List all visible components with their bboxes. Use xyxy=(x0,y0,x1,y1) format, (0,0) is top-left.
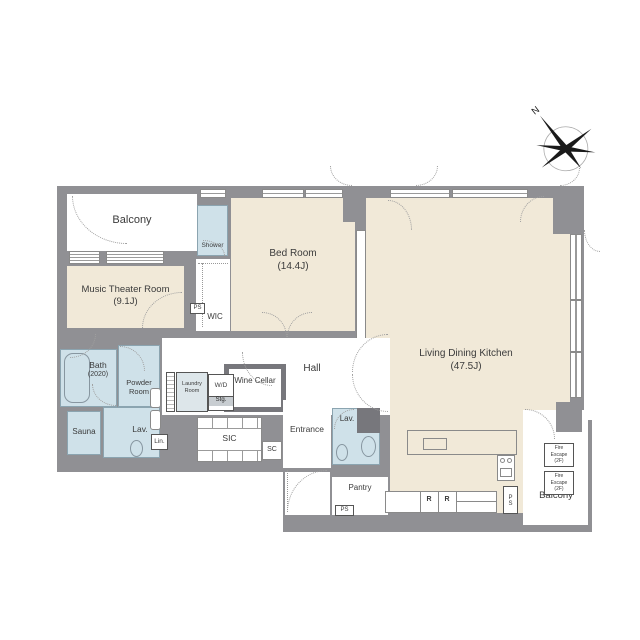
balcony-south-notch xyxy=(556,402,582,432)
window-east-2 xyxy=(570,300,582,352)
vent-arc-top-2 xyxy=(416,166,438,186)
ps-wic-label: PS xyxy=(190,305,205,313)
cooktop-grill xyxy=(500,468,512,477)
cooktop-burner-2 xyxy=(507,458,512,463)
sic-shelves-top xyxy=(198,418,261,429)
refrigerator-1-label: R xyxy=(420,496,438,505)
laundry-label: Laundry Room xyxy=(176,381,208,395)
wic-hanger-pipe-top xyxy=(198,263,228,264)
kitchen-counter-shelfline xyxy=(457,501,496,502)
cooktop-burner-1 xyxy=(500,458,505,463)
window-top-4 xyxy=(390,189,450,198)
bedroom-bottom-wall-left xyxy=(231,331,262,338)
floor-plan: Balcony Music Theater Room (9.1J) Shower… xyxy=(0,0,640,640)
sink-east xyxy=(361,436,376,457)
sauna-label: Sauna xyxy=(65,427,103,437)
window-top-1 xyxy=(200,189,226,198)
pantry-label: Pantry xyxy=(338,483,382,493)
utility-strip xyxy=(166,372,175,412)
room-ldk-main xyxy=(366,232,570,415)
sic-shelves-bottom xyxy=(198,450,261,461)
fire-escape-1-label: Fire Escape (2F) xyxy=(544,445,574,465)
entrance-door-leaf xyxy=(287,470,288,512)
wd-label: W/D xyxy=(208,382,234,390)
sc-label: SC xyxy=(262,446,282,455)
kitchen-counter-divider-3 xyxy=(456,491,457,513)
vanity-cabinet-2 xyxy=(150,410,161,430)
window-top-3 xyxy=(305,189,343,198)
lav-east-wall-block xyxy=(357,408,380,433)
ldk-label: Living Dining Kitchen (47.5J) xyxy=(366,348,566,373)
kitchen-island-sink xyxy=(423,438,447,450)
compass-rose: N xyxy=(520,98,606,190)
window-east-1 xyxy=(570,234,582,300)
bath-label: Bath (2020) xyxy=(80,360,116,379)
ps-pantry-label: PS xyxy=(335,507,354,515)
sic-label: SIC xyxy=(197,433,262,444)
toilet-east xyxy=(336,444,348,461)
pillar-northeast xyxy=(553,196,584,234)
compass-north-label: N xyxy=(530,104,542,117)
toilet-west xyxy=(130,440,143,457)
bed-room-label: Bed Room (14.4J) xyxy=(231,248,355,273)
vanity-cabinet-1 xyxy=(150,388,161,408)
vent-arc-top-1 xyxy=(330,166,352,186)
window-louver-1 xyxy=(69,251,100,264)
window-top-5 xyxy=(452,189,528,198)
wd-stg-label: Stg. xyxy=(209,397,233,405)
vent-arc-east-wall xyxy=(584,230,600,252)
bedroom-bottom-wall-right xyxy=(312,331,357,338)
hall-label: Hall xyxy=(292,363,332,376)
window-east-3 xyxy=(570,352,582,398)
window-top-2 xyxy=(262,189,304,198)
compass-needle-nwse xyxy=(536,119,595,178)
ps-kitchen-label: PS xyxy=(506,490,516,512)
window-louver-2 xyxy=(106,251,164,264)
entrance-label: Entrance xyxy=(281,424,333,435)
refrigerator-2-label: R xyxy=(438,496,456,505)
linen-label: Lin. xyxy=(151,438,168,446)
fire-escape-2-label: Fire Escape (2F) xyxy=(544,473,574,493)
